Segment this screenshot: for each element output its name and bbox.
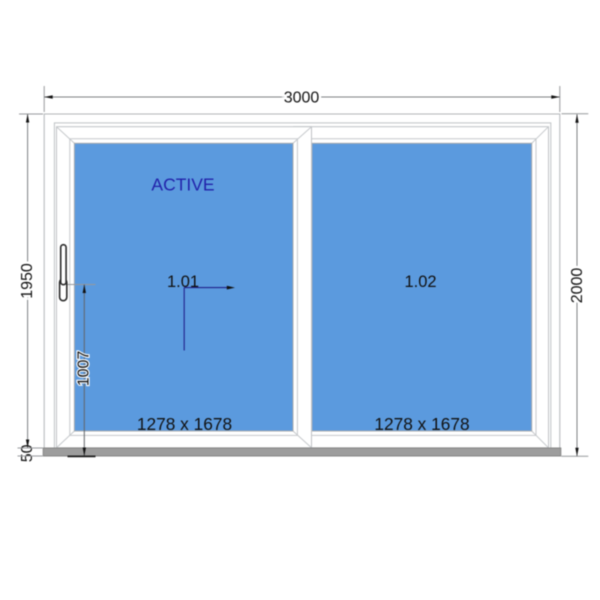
svg-text:3000: 3000 (284, 90, 320, 107)
svg-text:1007: 1007 (76, 351, 93, 387)
svg-text:1.02: 1.02 (404, 273, 436, 291)
svg-text:1.01: 1.01 (167, 273, 199, 291)
svg-text:1278 x 1678: 1278 x 1678 (374, 414, 469, 434)
svg-text:1950: 1950 (19, 263, 36, 299)
svg-text:1278 x 1678: 1278 x 1678 (137, 414, 232, 434)
svg-text:50: 50 (19, 444, 36, 462)
svg-text:ACTIVE: ACTIVE (151, 175, 214, 195)
svg-text:2000: 2000 (569, 268, 586, 304)
